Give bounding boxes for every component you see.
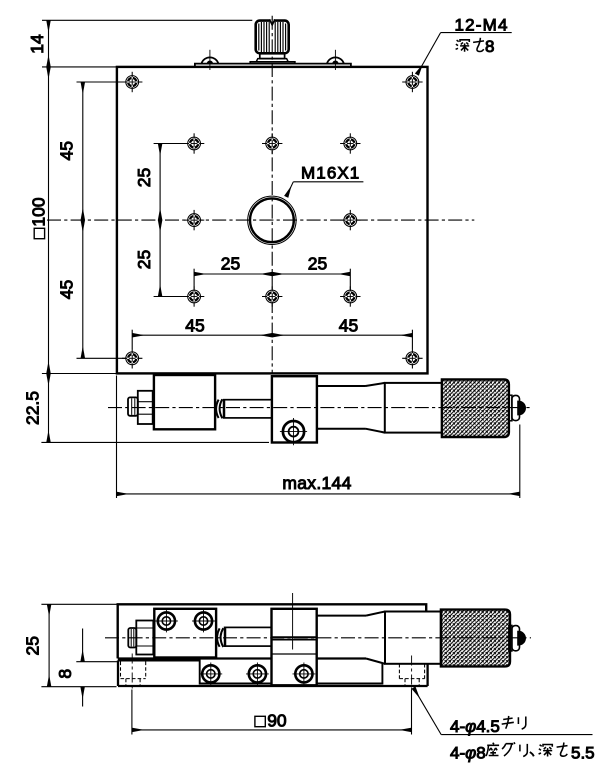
svg-text:25: 25: [23, 636, 43, 655]
svg-text:45: 45: [185, 316, 204, 336]
svg-text:45: 45: [57, 280, 77, 299]
svg-text:25: 25: [308, 253, 327, 273]
svg-text:90: 90: [267, 711, 287, 731]
svg-text:5.5: 5.5: [571, 743, 595, 762]
svg-text:4-φ4.5: 4-φ4.5: [450, 717, 500, 736]
svg-text:45: 45: [57, 141, 77, 160]
svg-text:4-φ8: 4-φ8: [450, 743, 486, 762]
svg-text:25: 25: [134, 168, 154, 187]
svg-text:100: 100: [29, 197, 49, 226]
svg-text:8: 8: [485, 37, 494, 56]
svg-text:45: 45: [339, 316, 358, 336]
svg-text:22.5: 22.5: [23, 391, 43, 425]
svg-text:8: 8: [55, 669, 75, 679]
svg-text:max.144: max.144: [282, 473, 351, 493]
svg-text:12-M4: 12-M4: [455, 15, 509, 34]
svg-text:M16X1: M16X1: [301, 164, 360, 183]
svg-text:25: 25: [134, 250, 154, 269]
svg-text:14: 14: [27, 34, 47, 54]
svg-text:25: 25: [221, 253, 240, 273]
